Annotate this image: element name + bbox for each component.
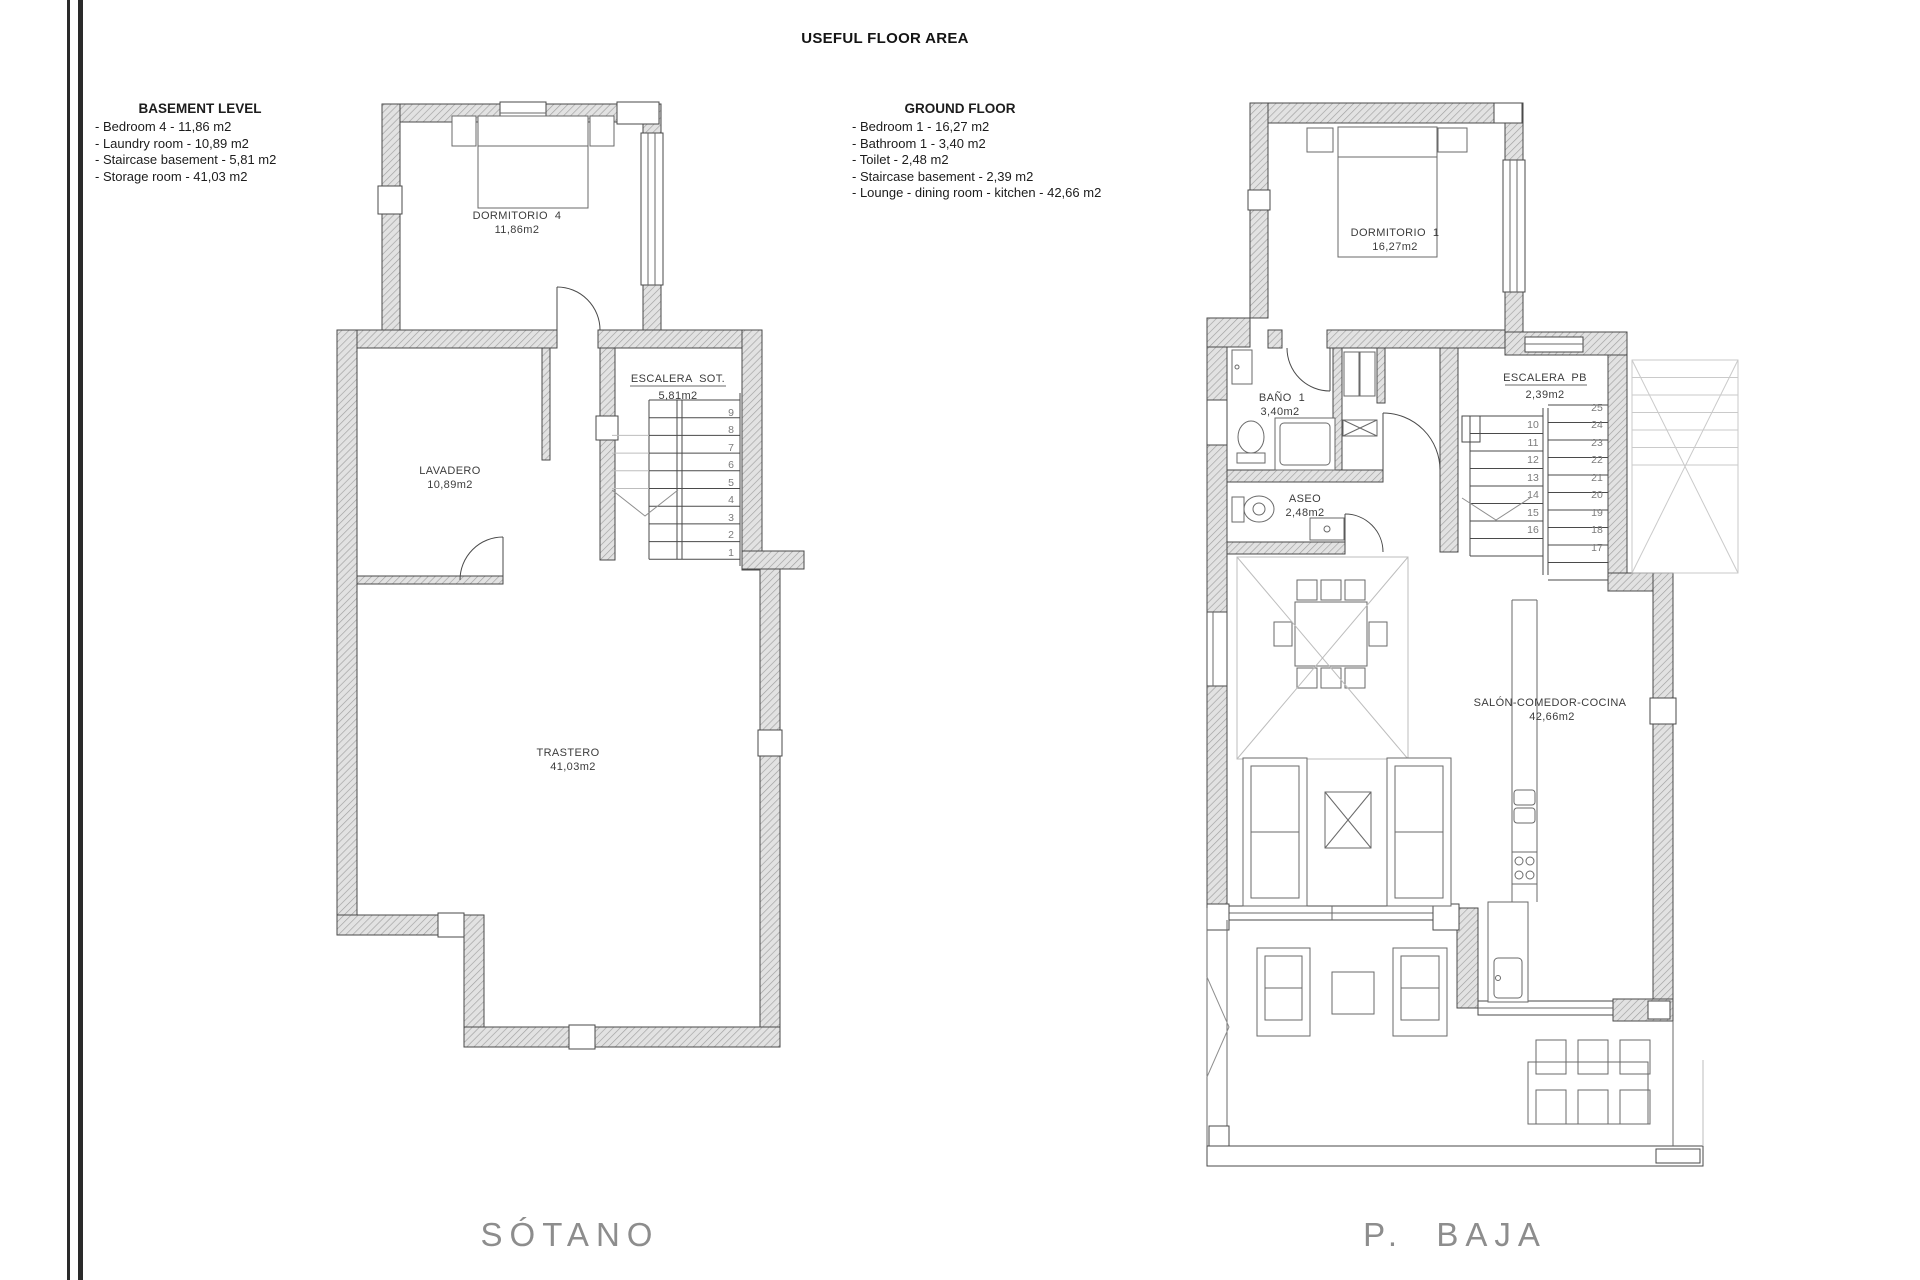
stair-step-number: 24	[1591, 419, 1603, 431]
terrace	[1207, 908, 1703, 1166]
ground-staircase: 10 11 12 13 14 15 16 25 24 23 22 21 20 1…	[1462, 402, 1608, 580]
room-label: ESCALERA SOT.	[631, 373, 725, 385]
room-label: BAÑO 1	[1259, 391, 1305, 404]
room-label: TRASTERO	[536, 747, 599, 759]
kitchen-counter	[1488, 600, 1537, 1002]
drawing-sheet: USEFUL FLOOR AREA BASEMENT LEVEL - Bedro…	[0, 0, 1920, 1280]
stair-step-number: 21	[1591, 472, 1603, 484]
room-area: 5,81m2	[658, 390, 697, 402]
stair-step-number: 16	[1527, 524, 1539, 536]
room-label: DORMITORIO 4	[473, 210, 562, 222]
stair-step-number: 17	[1591, 542, 1603, 554]
room-label: ASEO	[1289, 493, 1321, 505]
stair-step-number: 8	[728, 424, 734, 436]
stair-step-number: 12	[1527, 454, 1539, 466]
ground-closet	[1344, 352, 1375, 396]
floor-plan-drawing: 9 8 7 6 5 4 3 2 1 DORMITORIO 4 11,86m2 L…	[0, 0, 1920, 1280]
stair-step-number: 19	[1591, 507, 1603, 519]
room-area: 42,66m2	[1529, 711, 1575, 723]
ground-plan: 10 11 12 13 14 15 16 25 24 23 22 21 20 1…	[1207, 103, 1738, 1166]
stair-step-number: 4	[728, 494, 734, 506]
bathroom-fixtures	[1232, 350, 1377, 470]
stair-step-number: 7	[728, 442, 734, 454]
stair-step-number: 6	[728, 459, 734, 471]
stair-step-number: 11	[1528, 437, 1539, 449]
stair-step-number: 5	[728, 477, 734, 489]
room-area: 2,48m2	[1285, 507, 1324, 519]
stair-step-number: 25	[1591, 402, 1603, 414]
room-area: 2,39m2	[1525, 389, 1564, 401]
basement-plan: 9 8 7 6 5 4 3 2 1 DORMITORIO 4 11,86m2 L…	[337, 102, 804, 1049]
room-label: ESCALERA PB	[1503, 372, 1587, 384]
room-label: DORMITORIO 1	[1351, 227, 1440, 239]
basement-bed	[452, 116, 614, 208]
indoor-dining-set	[1274, 580, 1387, 688]
stair-step-number: 2	[728, 529, 734, 541]
stair-step-number: 1	[728, 547, 734, 559]
room-label: SALÓN-COMEDOR-COCINA	[1474, 696, 1627, 709]
indoor-sofas	[1243, 758, 1451, 906]
room-area: 10,89m2	[427, 479, 473, 491]
room-area: 41,03m2	[550, 761, 596, 773]
basement-walls	[337, 104, 804, 1047]
stair-step-number: 14	[1527, 489, 1539, 501]
room-area: 3,40m2	[1260, 406, 1299, 418]
plan-name-basement: SÓTANO	[410, 1216, 730, 1254]
room-area: 16,27m2	[1372, 241, 1418, 253]
room-area: 11,86m2	[495, 224, 540, 236]
stair-step-number: 13	[1527, 472, 1539, 484]
ghost-stair	[1632, 360, 1738, 573]
stair-step-number: 3	[728, 512, 734, 524]
stair-step-number: 18	[1591, 524, 1603, 536]
basement-staircase: 9 8 7 6 5 4 3 2 1	[612, 393, 740, 566]
stair-step-number: 20	[1591, 489, 1603, 501]
stair-step-number: 22	[1591, 454, 1603, 466]
stair-step-number: 23	[1591, 437, 1603, 449]
stair-step-number: 9	[728, 407, 734, 419]
stair-step-number: 15	[1527, 507, 1539, 519]
plan-name-ground: P. BAJA	[1295, 1216, 1615, 1254]
room-label: LAVADERO	[419, 465, 481, 477]
stair-step-number: 10	[1527, 419, 1539, 431]
